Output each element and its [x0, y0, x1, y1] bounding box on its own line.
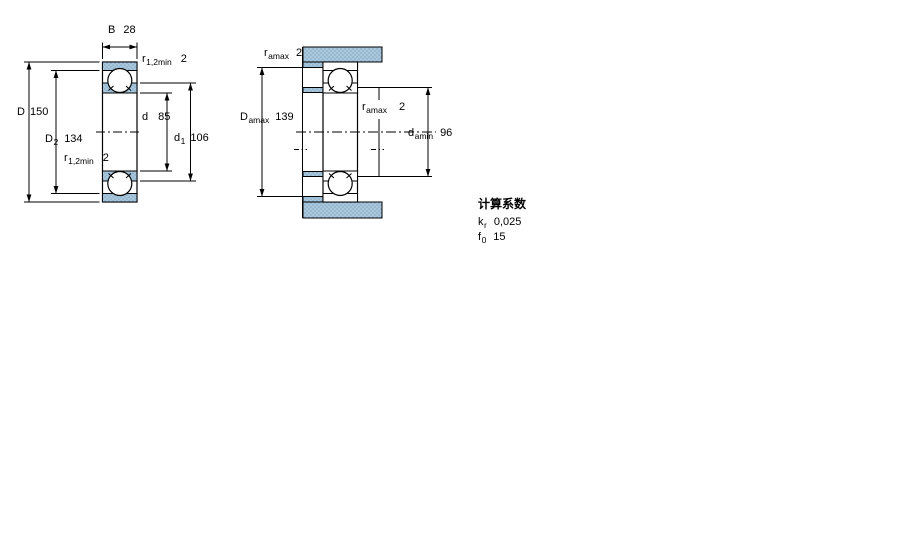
dim-bore-diameter-label: d85: [142, 111, 170, 123]
dim-outer-diameter-label: D150: [17, 106, 48, 118]
factor-row-f0: f015: [478, 231, 506, 243]
dim-shaft-shoulder-min-label: damin96: [408, 127, 452, 139]
dim-housing-fillet-label: ramax2: [264, 47, 302, 59]
dim-shaft-fillet-label: ramax2: [362, 101, 405, 113]
calculation-factors-title: 计算系数: [478, 195, 526, 212]
dim-width-label: B28: [108, 24, 136, 36]
housing-shoulder-bottom: [303, 197, 324, 203]
ball-bottom: [108, 172, 132, 196]
shaft-shoulder-bottom: [303, 172, 324, 177]
dim-recess-diameter-label: D2134: [45, 133, 83, 145]
dim-housing-shoulder-max-label: Damax139: [240, 111, 294, 123]
dim-fillet-top-label: r1,2min2: [142, 53, 187, 65]
ball-top: [328, 69, 352, 93]
ball-bottom: [328, 172, 352, 196]
bearing-drawing-page: B28 r1,2min2 D150 D2134 d85 d1106 r1,2mi…: [0, 0, 900, 560]
housing-shoulder-top: [303, 62, 324, 68]
dim-fillet-bottom-label: r1,2min2: [64, 152, 109, 164]
factor-row-kr: kr0,025: [478, 216, 521, 228]
shaft-shoulder-top: [303, 88, 324, 93]
dim-shoulder-diameter-label: d1106: [174, 132, 209, 144]
ball-top: [108, 69, 132, 93]
